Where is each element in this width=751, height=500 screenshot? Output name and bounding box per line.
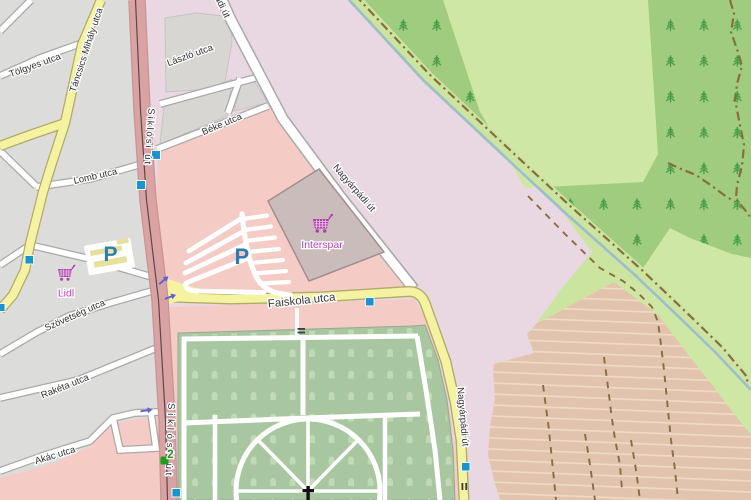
svg-text:Lidl: Lidl [58, 288, 74, 300]
svg-text:P: P [104, 243, 118, 266]
svg-text:P: P [235, 244, 250, 269]
svg-text:2: 2 [167, 449, 173, 461]
svg-text:Interspar: Interspar [301, 239, 343, 251]
